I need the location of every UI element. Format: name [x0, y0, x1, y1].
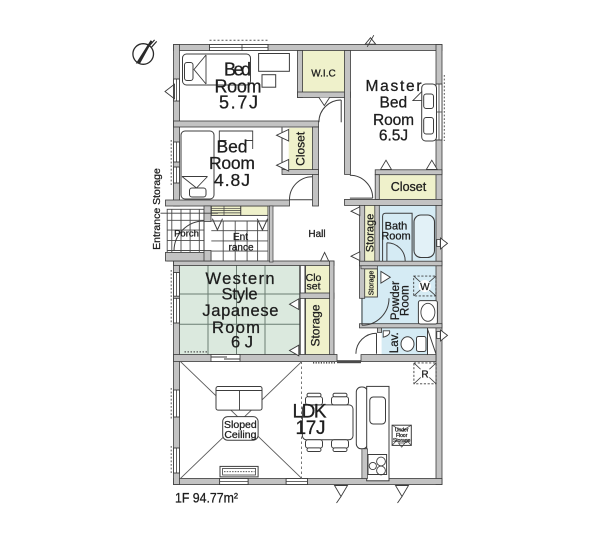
svg-text:Hall: Hall [308, 229, 325, 240]
svg-text:6.5J: 6.5J [379, 128, 408, 145]
svg-text:Storage: Storage [309, 304, 323, 346]
svg-text:R: R [421, 369, 428, 380]
svg-text:Porch: Porch [174, 229, 199, 240]
svg-text:Japanese: Japanese [202, 302, 278, 320]
svg-text:17J: 17J [296, 418, 326, 439]
svg-text:Closet: Closet [294, 131, 308, 166]
svg-text:Ceiling: Ceiling [224, 429, 256, 441]
svg-text:Lav.: Lav. [389, 332, 401, 353]
svg-text:Room: Room [400, 285, 412, 316]
svg-text:W.I.C: W.I.C [311, 69, 335, 80]
svg-text:Master: Master [366, 78, 422, 95]
svg-text:Storage: Storage [393, 438, 411, 444]
svg-text:4.8J: 4.8J [214, 170, 250, 190]
svg-text:Room: Room [373, 112, 414, 129]
svg-text:Closet: Closet [391, 180, 427, 194]
svg-text:set: set [306, 281, 320, 293]
svg-text:5.7J: 5.7J [219, 93, 258, 113]
svg-text:Bed: Bed [380, 95, 408, 112]
svg-text:W: W [420, 282, 430, 293]
svg-text:Storage: Storage [368, 271, 375, 296]
svg-text:Entrance Storage: Entrance Storage [151, 168, 163, 250]
svg-text:1F 94.77m²: 1F 94.77m² [175, 490, 238, 506]
svg-text:rance: rance [228, 243, 253, 254]
svg-text:Room: Room [381, 231, 410, 243]
svg-text:Style: Style [222, 286, 258, 304]
svg-text:Storage: Storage [364, 214, 376, 253]
svg-text:Ent: Ent [233, 232, 248, 243]
